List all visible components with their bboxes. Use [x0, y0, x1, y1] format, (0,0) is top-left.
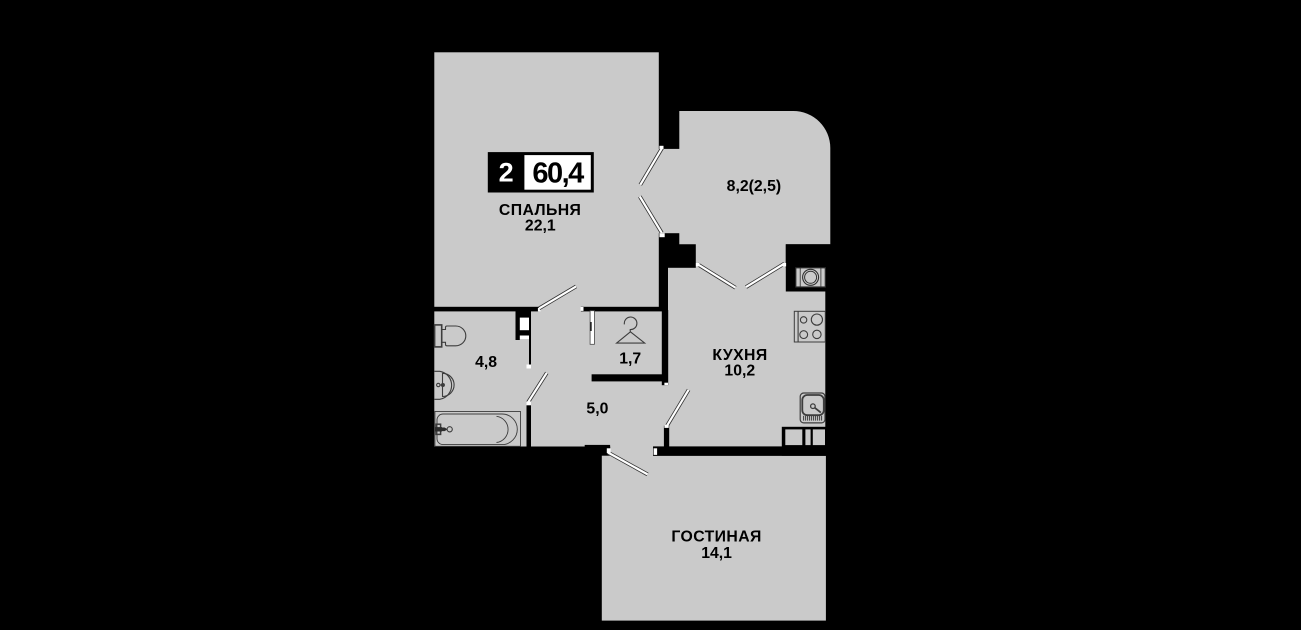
svg-text:22,1: 22,1	[525, 218, 556, 235]
svg-text:4,8: 4,8	[475, 354, 497, 371]
svg-text:2: 2	[499, 158, 514, 188]
svg-text:СПАЛЬНЯ: СПАЛЬНЯ	[499, 202, 581, 219]
svg-text:8,2(2,5): 8,2(2,5)	[727, 178, 781, 195]
svg-text:14,1: 14,1	[701, 545, 732, 562]
svg-text:ГОСТИНАЯ: ГОСТИНАЯ	[671, 529, 761, 546]
svg-text:10,2: 10,2	[724, 362, 755, 379]
svg-text:5,0: 5,0	[586, 401, 608, 418]
svg-text:1,7: 1,7	[619, 351, 641, 368]
svg-text:60,4: 60,4	[532, 158, 584, 190]
